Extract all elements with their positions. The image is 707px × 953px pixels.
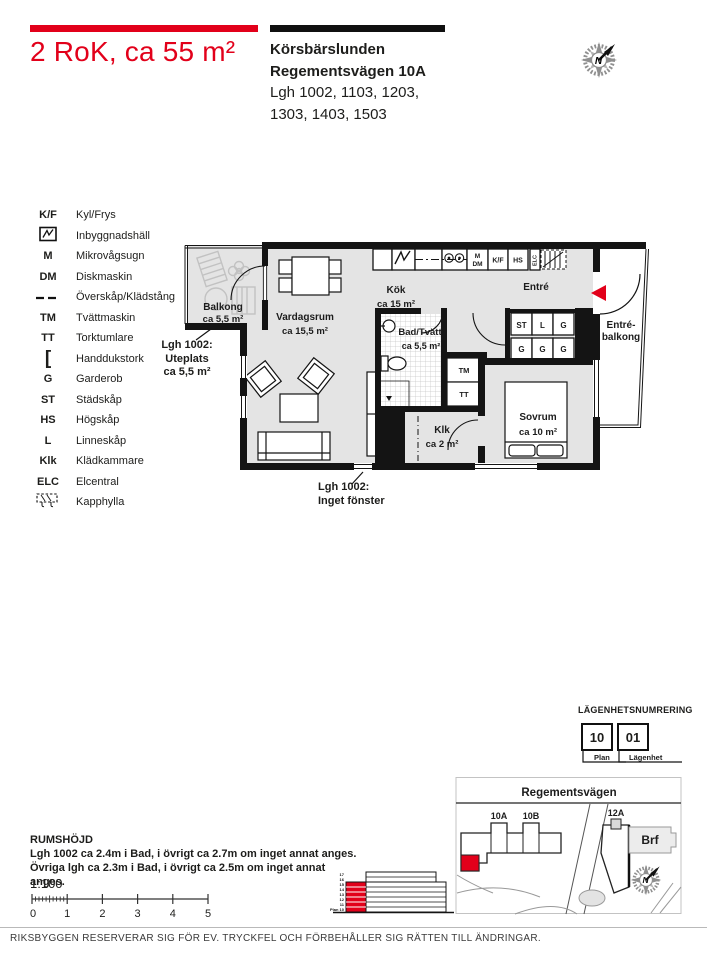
page-title: 2 RoK, ca 55 m² [30, 36, 235, 68]
tm-label: TM [459, 366, 470, 375]
room-area-balkong: ca 5,5 m² [203, 314, 244, 325]
appliance-dm: DM [472, 261, 482, 268]
address-block: Körsbärslunden Regementsvägen 10A Lgh 10… [270, 39, 426, 125]
room-area-bad: ca 5,5 m² [402, 341, 441, 351]
toilet [388, 357, 406, 370]
closet-st: ST [516, 321, 526, 330]
room-label-entre: Entré [523, 282, 549, 293]
entre-balkong-label2: balkong [602, 332, 640, 343]
legend-abbr: HS [30, 414, 66, 426]
legend-abbr: M [30, 250, 66, 262]
legend-label: Torktumlare [76, 332, 133, 344]
street-label: Regementsvägen [521, 787, 616, 799]
footer-divider [0, 927, 707, 928]
apartment-numbers-line1: Lgh 1002, 1103, 1203, [270, 82, 426, 104]
room-label-vardagsrum: Vardagsrum [276, 312, 334, 323]
compass-rose-icon: N [574, 35, 624, 85]
legend-label: Kyl/Frys [76, 209, 116, 221]
legend-label: Handdukstork [76, 353, 144, 365]
map-compass-n-label: N [643, 875, 650, 885]
ruler-tick-5: 5 [205, 908, 211, 920]
apartment-label: Lägenhet [629, 753, 663, 762]
title-red-bar [30, 25, 258, 32]
coat-rack-icon [541, 250, 566, 269]
numbering-heading: LÄGENHETSNUMRERING [578, 705, 693, 715]
ruler-tick-0: 0 [30, 908, 36, 920]
room-area-vardagsrum: ca 15,5 m² [282, 326, 328, 337]
legend-abbr: ELC [30, 476, 66, 488]
numbering-connectors: Plan Lägenhet [581, 749, 696, 769]
closet-g: G [518, 345, 524, 354]
apartment-numbers-line2: 1303, 1403, 1503 [270, 104, 426, 126]
room-area-sovrum: ca 10 m² [519, 427, 557, 438]
legend-label: Inbyggnadshäll [76, 230, 150, 242]
room-label-sovrum: Sovrum [519, 412, 556, 423]
ruler-tick-3: 3 [135, 908, 141, 920]
room-height-line2: Övriga lgh ca 2.3m i Bad, i övrigt ca 2.… [30, 861, 360, 889]
legend-abbr: L [30, 435, 66, 447]
room-label-balkong: Balkong [203, 302, 242, 313]
legend-label: Garderob [76, 373, 122, 385]
hob-icon [30, 226, 66, 245]
entre-balkong-label1: Entré- [607, 320, 636, 331]
building-elevation: 17 16 15 14 13 12 11 Plan 10 [330, 862, 460, 916]
legend-label: Klädkammare [76, 455, 144, 467]
brochure-page: 2 RoK, ca 55 m² Körsbärslunden Regements… [0, 0, 707, 953]
room-label-klk: Klk [434, 425, 450, 436]
building-10b-label: 10B [523, 811, 540, 821]
room-height-line1: Lgh 1002 ca 2.4m i Bad, i övrigt ca 2.7m… [30, 847, 360, 861]
site-map: Regementsvägen 10A 10B 12A Brf [455, 775, 687, 922]
room-label-kok: Kök [387, 285, 406, 296]
legend-abbr: G [30, 373, 66, 385]
appliance-kf: K/F [492, 258, 504, 265]
floor-plan: Balkong ca 5,5 m² Vardagsrum ca 15,5 m² … [175, 236, 675, 526]
ruler-tick-1: 1 [64, 908, 70, 920]
legend-abbr: TM [30, 312, 66, 324]
project-name: Körsbärslunden [270, 39, 426, 61]
legend-label: Högskåp [76, 414, 119, 426]
svg-text:Plan 10: Plan 10 [330, 907, 345, 912]
uteplats-note: Lgh 1002: Uteplats ca 5,5 m² [150, 339, 224, 380]
room-height-block: RUMSHÖJD Lgh 1002 ca 2.4m i Bad, i övrig… [30, 833, 360, 889]
floor-labels: 17 16 15 14 13 12 11 Plan 10 [330, 872, 345, 912]
coffee-table [280, 394, 318, 422]
closet-g: G [539, 345, 545, 354]
sofa [258, 432, 330, 460]
building-12a-label: 12A [608, 808, 625, 818]
brf-label: Brf [641, 833, 659, 847]
dining-table [292, 257, 329, 295]
appliance-m: M [475, 253, 480, 260]
appliance-hs: HS [513, 258, 523, 265]
ruler-tick-4: 4 [170, 908, 176, 920]
rail-dashes-icon [30, 291, 66, 303]
room-area-kok: ca 15 m² [377, 299, 415, 310]
scale-ruler: 0 1 2 3 4 5 [30, 893, 220, 921]
legend-label: Diskmaskin [76, 271, 132, 283]
plan-number-box: 10 [581, 723, 613, 751]
legend-label: Överskåp/Klädstång [76, 291, 175, 303]
legend-abbr: DM [30, 271, 66, 283]
window-note: Lgh 1002: Inget fönster [318, 481, 418, 508]
legend-row: K/FKyl/Frys [30, 205, 220, 226]
toilet-tank [381, 356, 388, 371]
legend-label: Elcentral [76, 476, 119, 488]
plan-label: Plan [594, 753, 610, 762]
closet-g: G [560, 345, 566, 354]
coat-rack-icon [30, 493, 66, 511]
tt-label: TT [459, 390, 469, 399]
legend-abbr: ST [30, 394, 66, 406]
legend-abbr: K/F [30, 209, 66, 221]
highlighted-unit [461, 855, 479, 871]
closet-g: G [560, 321, 566, 330]
room-label-bad: Bad/Tvätt [398, 327, 442, 338]
scale-ratio: 1:100 [30, 876, 63, 891]
legend-abbr: Klk [30, 455, 66, 467]
ruler-tick-2: 2 [99, 908, 105, 920]
apartment-number-box: 01 [617, 723, 649, 751]
legend-label: Mikrovågsugn [76, 250, 144, 262]
legend-label: Linneskåp [76, 435, 126, 447]
room-height-heading: RUMSHÖJD [30, 833, 360, 847]
legend-label: Städskåp [76, 394, 122, 406]
legend-abbr: TT [30, 332, 66, 344]
building-10a-label: 10A [491, 811, 508, 821]
footer-disclaimer: RIKSBYGGEN RESERVERAR SIG FÖR EV. TRYCKF… [10, 933, 541, 944]
street-address: Regementsvägen 10A [270, 61, 426, 83]
legend-label: Tvättmaskin [76, 312, 135, 324]
towel-rail-icon: [ [30, 354, 66, 364]
room-area-klk: ca 2 m² [426, 439, 459, 450]
compass-n-label: N [595, 56, 603, 67]
legend-label: Kapphylla [76, 496, 124, 508]
closet-l: L [540, 321, 545, 330]
map-pond [579, 890, 605, 906]
address-black-bar [270, 25, 445, 32]
appliance-elc: ELC [533, 255, 539, 266]
